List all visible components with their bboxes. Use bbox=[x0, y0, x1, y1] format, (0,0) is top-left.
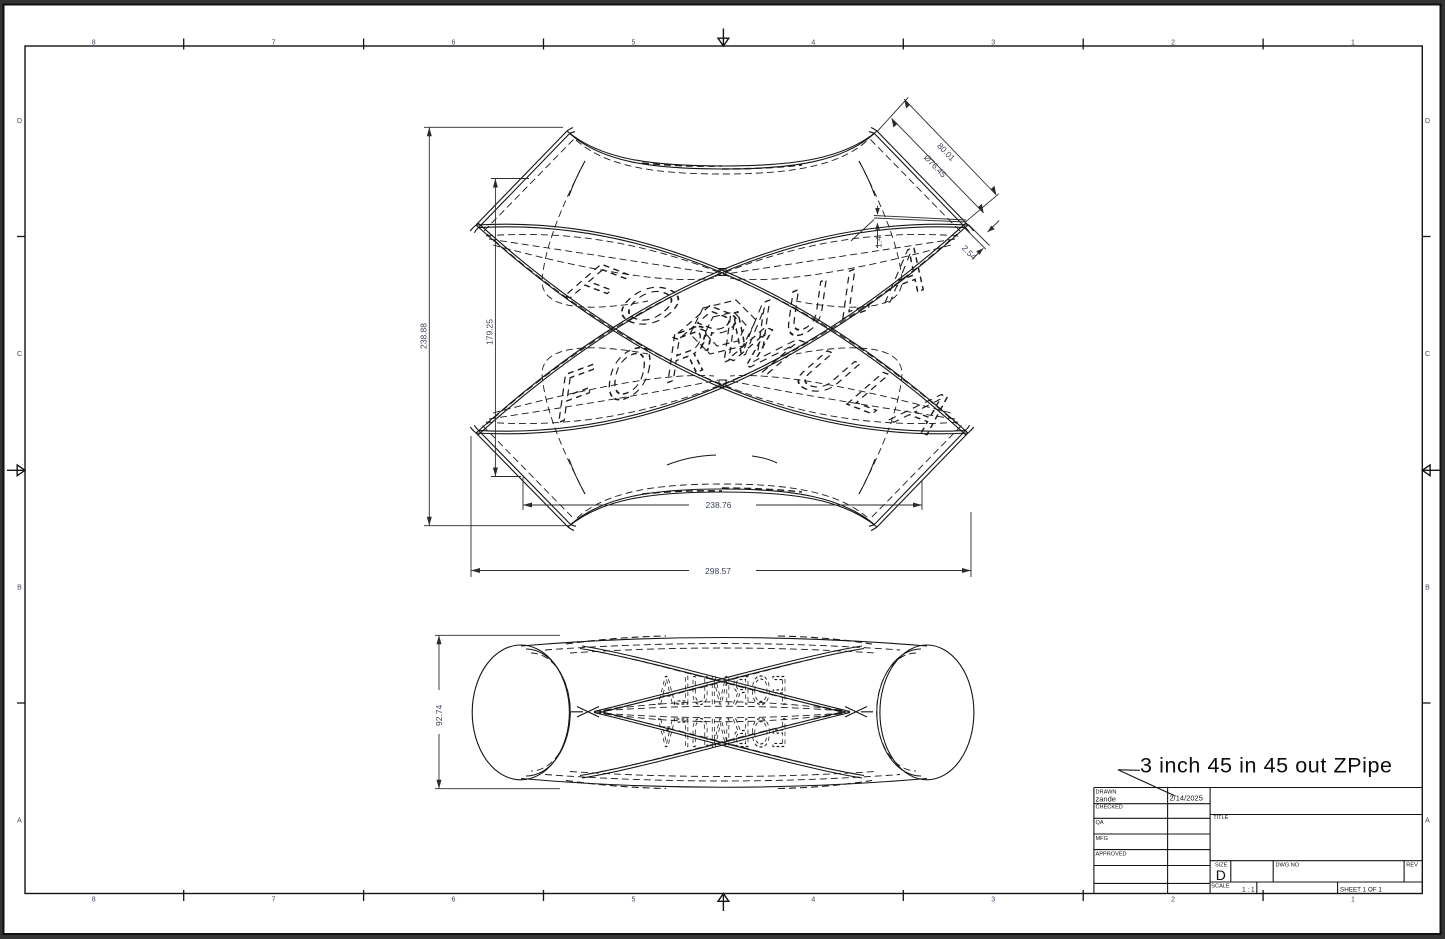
svg-text:2: 2 bbox=[1171, 40, 1175, 47]
svg-text:REV: REV bbox=[1406, 862, 1418, 868]
svg-text:A: A bbox=[1425, 818, 1430, 825]
svg-text:6: 6 bbox=[452, 40, 456, 47]
svg-text:7: 7 bbox=[272, 897, 276, 904]
svg-text:DWG NO: DWG NO bbox=[1276, 862, 1300, 868]
svg-text:2/14/2025: 2/14/2025 bbox=[1170, 794, 1203, 803]
svg-text:C: C bbox=[17, 351, 22, 358]
svg-text:zande: zande bbox=[1096, 795, 1116, 804]
svg-text:5: 5 bbox=[631, 897, 635, 904]
svg-text:TITLE: TITLE bbox=[1213, 815, 1228, 821]
svg-text:C: C bbox=[1425, 351, 1430, 358]
svg-text:6: 6 bbox=[452, 897, 456, 904]
svg-text:92.74: 92.74 bbox=[434, 704, 444, 726]
svg-text:CHECKED: CHECKED bbox=[1096, 805, 1123, 811]
svg-text:1: 1 bbox=[1351, 897, 1355, 904]
svg-text:1: 1 bbox=[1351, 40, 1355, 47]
svg-text:3: 3 bbox=[991, 40, 995, 47]
svg-text:A: A bbox=[17, 818, 22, 825]
svg-text:3: 3 bbox=[991, 897, 995, 904]
svg-text:238.88: 238.88 bbox=[419, 323, 429, 349]
svg-text:B: B bbox=[1425, 585, 1430, 592]
svg-text:APPROVED: APPROVED bbox=[1096, 852, 1127, 858]
svg-text:8: 8 bbox=[92, 897, 96, 904]
svg-text:D: D bbox=[1425, 118, 1430, 125]
svg-text:SCALE: SCALE bbox=[1211, 883, 1230, 889]
svg-text:4: 4 bbox=[811, 897, 815, 904]
svg-text:4: 4 bbox=[811, 40, 815, 47]
svg-text:FORMULA: FORMULA bbox=[657, 669, 787, 713]
svg-text:7: 7 bbox=[272, 40, 276, 47]
svg-text:B: B bbox=[17, 585, 22, 592]
svg-text:SHEET 1 OF 1: SHEET 1 OF 1 bbox=[1340, 886, 1382, 893]
svg-text:QA: QA bbox=[1096, 820, 1104, 826]
svg-text:FORMULA: FORMULA bbox=[657, 709, 787, 753]
svg-text:5: 5 bbox=[631, 40, 635, 47]
svg-text:MFG: MFG bbox=[1096, 836, 1108, 842]
svg-text:1 : 1: 1 : 1 bbox=[1242, 886, 1255, 893]
svg-text:179.25: 179.25 bbox=[485, 319, 495, 345]
svg-text:3 inch 45 in 45 out ZPipe: 3 inch 45 in 45 out ZPipe bbox=[1140, 754, 1392, 778]
svg-text:298.57: 298.57 bbox=[705, 566, 731, 576]
svg-text:8: 8 bbox=[92, 40, 96, 47]
svg-text:1.4: 1.4 bbox=[874, 236, 884, 248]
svg-text:D: D bbox=[1216, 867, 1226, 883]
svg-text:238.76: 238.76 bbox=[706, 500, 732, 510]
svg-text:D: D bbox=[17, 118, 22, 125]
svg-text:2: 2 bbox=[1171, 897, 1175, 904]
